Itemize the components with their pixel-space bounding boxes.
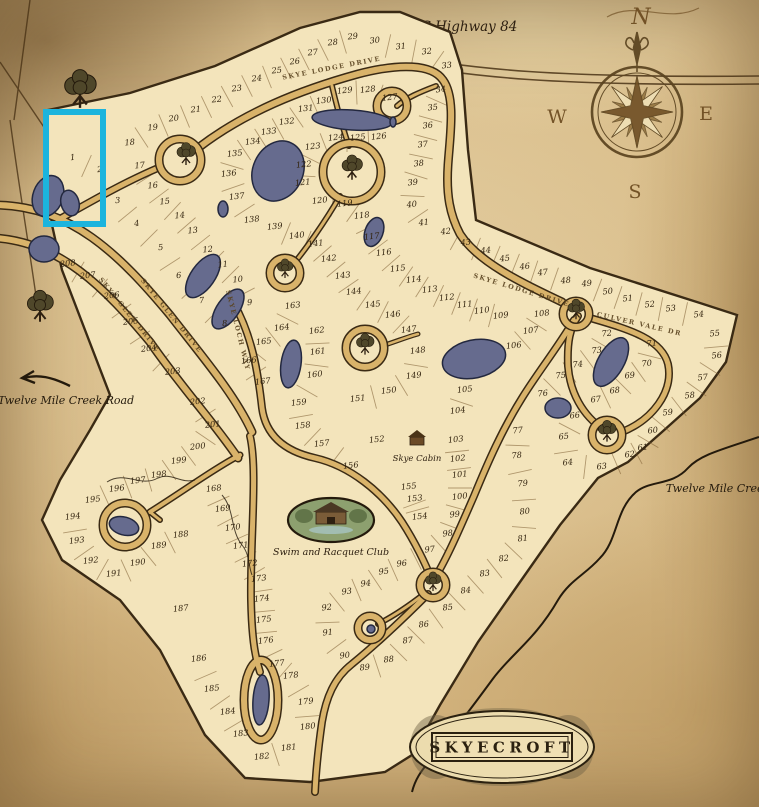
lot-number: 205 bbox=[121, 315, 139, 327]
twelve-mile-creek-road-label: Twelve Mile Creek Road bbox=[0, 394, 134, 407]
lot-number: 90 bbox=[339, 649, 350, 660]
lot-number: 204 bbox=[139, 342, 157, 354]
lot-number: 3 bbox=[115, 195, 121, 205]
lot-number: 9 bbox=[247, 297, 253, 307]
lot-number: 191 bbox=[105, 567, 122, 579]
lot-number: 20 bbox=[167, 112, 179, 123]
lot-number: 33 bbox=[441, 59, 452, 70]
lot-number: 101 bbox=[451, 468, 468, 480]
lot-number: 78 bbox=[511, 449, 522, 460]
lot-number: 61 bbox=[637, 441, 648, 452]
lot-number: 93 bbox=[341, 585, 352, 596]
lot-number: 198 bbox=[150, 468, 167, 480]
lot-number: 116 bbox=[375, 246, 392, 258]
lot-number: 175 bbox=[255, 613, 272, 625]
lot-number: 18 bbox=[124, 136, 135, 147]
swim-racquet-club-icon bbox=[288, 498, 374, 542]
lot-number: 130 bbox=[315, 94, 332, 106]
lot-number: 151 bbox=[349, 392, 366, 404]
compass-star-icon bbox=[601, 76, 673, 148]
lot-number: 202 bbox=[188, 395, 206, 407]
lot-number: 66 bbox=[569, 409, 580, 420]
lot-number: 17 bbox=[134, 159, 146, 170]
lot-number: 107 bbox=[522, 324, 539, 336]
lot-number: 34 bbox=[435, 83, 446, 94]
lot-number: 194 bbox=[64, 510, 81, 522]
lot-number: 1 bbox=[70, 152, 76, 162]
pond bbox=[545, 398, 571, 418]
lot-number: 47 bbox=[536, 266, 549, 277]
lot-number: 105 bbox=[456, 383, 473, 395]
lot-number: 138 bbox=[243, 213, 260, 225]
lot-number: 147 bbox=[400, 323, 417, 335]
lot-number: 71 bbox=[646, 337, 657, 348]
lot-number: 161 bbox=[309, 345, 326, 357]
lot-number: 196 bbox=[108, 482, 125, 494]
lot-number: 19 bbox=[147, 121, 158, 132]
lot-number: 134 bbox=[244, 135, 261, 147]
lot-number: 118 bbox=[353, 209, 370, 221]
lot-number: 59 bbox=[662, 406, 673, 417]
lot-number: 95 bbox=[378, 565, 389, 576]
swim-racquet-club-label: Swim and Racquet Club bbox=[273, 547, 389, 558]
lot-number: 167 bbox=[254, 375, 271, 387]
lot-number: 85 bbox=[442, 601, 453, 612]
lot-number: 120 bbox=[311, 194, 328, 206]
lot-number: 135 bbox=[226, 147, 243, 159]
lot-number: 15 bbox=[159, 195, 170, 206]
lot-number: 23 bbox=[230, 82, 242, 93]
lot-number: 108 bbox=[533, 307, 550, 319]
lot-number: 176 bbox=[257, 634, 274, 646]
lot-number: 188 bbox=[172, 528, 189, 540]
creek-road-arrow-icon bbox=[22, 371, 70, 386]
lot-number: 165 bbox=[255, 335, 272, 347]
pond bbox=[390, 117, 396, 127]
lot-number: 45 bbox=[498, 252, 510, 263]
lot-number: 88 bbox=[383, 653, 394, 664]
skyecroft-banner: SKYECROFT bbox=[410, 708, 594, 786]
lot-number: 145 bbox=[364, 298, 381, 310]
lot-number: 10 bbox=[232, 273, 243, 284]
lot-number: 46 bbox=[518, 260, 530, 271]
lot-number: 153 bbox=[406, 492, 423, 504]
lot-number: 13 bbox=[187, 224, 198, 235]
lot-number: 54 bbox=[693, 308, 704, 319]
lot-number: 162 bbox=[308, 324, 325, 336]
lot-number: 5 bbox=[158, 242, 164, 252]
skyecroft-plat-map: NC Highway 84 Twelve Mile Creek SKYE LOD… bbox=[0, 0, 759, 807]
lot-number: 110 bbox=[473, 304, 490, 316]
lot-number: 189 bbox=[150, 539, 167, 551]
lot-number: 35 bbox=[427, 101, 438, 112]
lot-number: 81 bbox=[517, 532, 528, 543]
lot-number: 117 bbox=[363, 230, 380, 242]
lot-number: 75 bbox=[555, 369, 566, 380]
compass-flourish bbox=[607, 8, 699, 17]
lot-number: 126 bbox=[370, 130, 387, 142]
lot-number: 53 bbox=[665, 302, 676, 313]
skye-cabin-label: Skye Cabin bbox=[393, 454, 442, 464]
lot-number: 206 bbox=[102, 289, 120, 301]
lot-number: 94 bbox=[360, 577, 371, 588]
lot-number: 146 bbox=[384, 308, 401, 320]
lot-number: 154 bbox=[411, 510, 428, 522]
lot-number: 197 bbox=[129, 474, 146, 486]
lot-number: 174 bbox=[253, 592, 270, 604]
lot-number: 55 bbox=[709, 327, 720, 338]
lot-number: 76 bbox=[537, 387, 548, 398]
lot-number: 97 bbox=[424, 543, 436, 554]
lot-number: 131 bbox=[297, 102, 314, 114]
lot-number: 178 bbox=[282, 669, 299, 681]
lot-number: 44 bbox=[479, 244, 491, 255]
lot-number: 203 bbox=[163, 365, 181, 377]
lot-number: 49 bbox=[580, 277, 592, 288]
lot-number: 56 bbox=[711, 349, 722, 360]
lot-number: 58 bbox=[684, 389, 695, 400]
lot-number: 122 bbox=[295, 158, 312, 170]
lot-number: 182 bbox=[253, 750, 270, 762]
lot-number: 114 bbox=[405, 273, 422, 285]
lot-number: 179 bbox=[297, 695, 314, 707]
lot-number: 195 bbox=[84, 493, 101, 505]
lot-number: 200 bbox=[188, 440, 206, 452]
lot-number: 26 bbox=[288, 55, 300, 66]
lot-number: 51 bbox=[622, 292, 633, 303]
lot-number: 170 bbox=[224, 521, 241, 533]
lot-number: 48 bbox=[559, 274, 571, 285]
lot-number: 16 bbox=[147, 179, 158, 190]
lot-number: 123 bbox=[304, 140, 321, 152]
lot-number: 150 bbox=[380, 384, 397, 396]
compass-rose: N W E S bbox=[547, 5, 713, 203]
lot-number: 187 bbox=[172, 602, 189, 614]
lot-number: 83 bbox=[479, 567, 490, 578]
lot-number: 166 bbox=[240, 354, 257, 366]
skyecroft-title: SKYECROFT bbox=[429, 739, 574, 757]
lot-number: 144 bbox=[345, 285, 362, 297]
lot-number: 74 bbox=[572, 358, 583, 369]
lot-number: 172 bbox=[241, 557, 258, 569]
lot-number: 28 bbox=[326, 36, 338, 47]
lot-number: 62 bbox=[624, 448, 635, 459]
lot-number: 21 bbox=[189, 103, 201, 114]
pond bbox=[29, 236, 59, 262]
lot-number: 119 bbox=[336, 197, 353, 209]
lot-number: 89 bbox=[359, 661, 370, 672]
lot-number: 84 bbox=[460, 584, 471, 595]
lot-number: 156 bbox=[342, 459, 359, 471]
lot-number: 30 bbox=[369, 34, 380, 45]
lot-number: 99 bbox=[449, 508, 460, 519]
lot-number: 106 bbox=[505, 339, 522, 351]
lot-number: 164 bbox=[273, 321, 290, 333]
fleur-de-lis-icon bbox=[626, 32, 648, 72]
lot-number: 133 bbox=[260, 125, 277, 137]
lot-number: 64 bbox=[562, 456, 573, 467]
lot-number: 104 bbox=[449, 404, 466, 416]
lot-number: 4 bbox=[133, 218, 140, 229]
lot-number: 96 bbox=[396, 557, 407, 568]
lot-number: 52 bbox=[644, 298, 655, 309]
lot-number: 91 bbox=[322, 626, 333, 637]
lot-number: 132 bbox=[278, 115, 295, 127]
lot-number: 43 bbox=[459, 236, 471, 247]
lot-number: 113 bbox=[421, 283, 438, 295]
lot-number: 24 bbox=[250, 72, 262, 83]
lot-number: 39 bbox=[407, 176, 418, 187]
lot-number: 208 bbox=[58, 257, 76, 269]
lot-number: 115 bbox=[389, 262, 406, 274]
lot-number: 38 bbox=[413, 157, 424, 168]
lot-number: 37 bbox=[417, 138, 429, 149]
lot-number: 50 bbox=[602, 285, 613, 296]
lot-number: 190 bbox=[129, 556, 146, 568]
lot-number: 207 bbox=[78, 269, 96, 281]
lot-number: 8 bbox=[222, 318, 228, 328]
lot-number: 27 bbox=[306, 46, 319, 57]
lot-number: 102 bbox=[449, 452, 466, 464]
lot-number: 57 bbox=[697, 371, 709, 382]
lot-number: 11 bbox=[217, 258, 228, 269]
lot-number: 149 bbox=[405, 369, 422, 381]
lot-number: 155 bbox=[400, 480, 417, 492]
lot-number: 124 bbox=[327, 131, 344, 143]
lot-number: 180 bbox=[299, 720, 316, 732]
lot-number: 87 bbox=[402, 634, 414, 645]
lot-number: 73 bbox=[591, 344, 602, 355]
compass-e: E bbox=[699, 103, 713, 125]
lot-number: 128 bbox=[359, 83, 376, 95]
lot-number: 121 bbox=[294, 176, 311, 188]
tree-icon bbox=[27, 290, 53, 322]
lot-number: 111 bbox=[456, 298, 473, 310]
lot-number: 42 bbox=[439, 225, 451, 236]
lot-number: 168 bbox=[205, 482, 222, 494]
lot-number: 60 bbox=[647, 424, 658, 435]
lot-number: 70 bbox=[641, 357, 652, 368]
lot-number: 177 bbox=[268, 657, 285, 669]
lot-number: 103 bbox=[447, 433, 464, 445]
lot-number: 14 bbox=[174, 209, 185, 220]
lot-number: 6 bbox=[176, 270, 182, 280]
lot-number: 109 bbox=[492, 309, 509, 321]
lot-number: 12 bbox=[202, 243, 213, 254]
lot-number: 77 bbox=[512, 424, 524, 435]
lot-number: 67 bbox=[590, 393, 602, 404]
lot-number: 160 bbox=[306, 368, 323, 380]
lot-number: 141 bbox=[307, 237, 324, 249]
twelve-mile-creek-label: Twelve Mile Creek bbox=[666, 482, 759, 495]
lot-number: 163 bbox=[284, 299, 301, 311]
lot-number: 192 bbox=[82, 554, 99, 566]
lot-number: 171 bbox=[232, 539, 249, 551]
pond bbox=[367, 625, 375, 633]
lot-number: 92 bbox=[321, 601, 332, 612]
lot-number: 173 bbox=[250, 572, 267, 584]
lot-number: 184 bbox=[219, 705, 236, 717]
lot-number: 143 bbox=[334, 269, 351, 281]
lot-number: 142 bbox=[320, 252, 337, 264]
lot-number: 193 bbox=[68, 534, 85, 546]
lot-number: 137 bbox=[228, 190, 245, 202]
lot-number: 169 bbox=[214, 502, 231, 514]
lot-number: 199 bbox=[170, 454, 187, 466]
lot-number: 139 bbox=[266, 220, 283, 232]
lot-number: 201 bbox=[203, 418, 221, 430]
plat-map-svg: NC Highway 84 Twelve Mile Creek SKYE LOD… bbox=[0, 0, 759, 807]
lot-number: 158 bbox=[294, 419, 311, 431]
lot-number: 100 bbox=[451, 490, 468, 502]
lot-number: 183 bbox=[232, 727, 249, 739]
lot-number: 41 bbox=[417, 216, 429, 227]
lot-number: 181 bbox=[280, 741, 297, 753]
lot-number: 140 bbox=[288, 229, 305, 241]
lot-number: 127 bbox=[381, 91, 398, 103]
lot-number: 79 bbox=[517, 477, 528, 488]
lot-number: 186 bbox=[190, 652, 207, 664]
lot-number: 40 bbox=[405, 198, 417, 209]
lot-number: 63 bbox=[596, 460, 607, 471]
compass-s: S bbox=[628, 181, 641, 203]
lot-number: 152 bbox=[368, 433, 385, 445]
lot-number: 159 bbox=[290, 396, 307, 408]
pond bbox=[218, 201, 228, 217]
lot-number: 185 bbox=[203, 682, 220, 694]
lot-number: 148 bbox=[409, 344, 426, 356]
lot-number: 65 bbox=[558, 430, 569, 441]
lot-number: 72 bbox=[601, 327, 612, 338]
lot-number: 32 bbox=[421, 45, 432, 56]
lot-number: 69 bbox=[624, 369, 635, 380]
compass-n: N bbox=[630, 5, 651, 30]
lot-number: 29 bbox=[346, 30, 358, 41]
lot-number: 129 bbox=[336, 84, 353, 96]
lot-number: 136 bbox=[220, 167, 237, 179]
lot-number: 22 bbox=[210, 93, 222, 104]
lot-number: 125 bbox=[349, 131, 366, 143]
lot-number: 80 bbox=[519, 505, 530, 516]
lot-number: 86 bbox=[418, 618, 429, 629]
lot-number: 36 bbox=[422, 119, 433, 130]
compass-w: W bbox=[547, 106, 567, 128]
lot-number: 98 bbox=[442, 527, 453, 538]
lot-number: 157 bbox=[313, 437, 330, 449]
lot-number: 112 bbox=[438, 291, 455, 303]
lot-number: 25 bbox=[270, 64, 282, 75]
lot-number: 68 bbox=[609, 384, 620, 395]
lot-number: 31 bbox=[395, 40, 406, 51]
lot-number: 82 bbox=[498, 552, 509, 563]
